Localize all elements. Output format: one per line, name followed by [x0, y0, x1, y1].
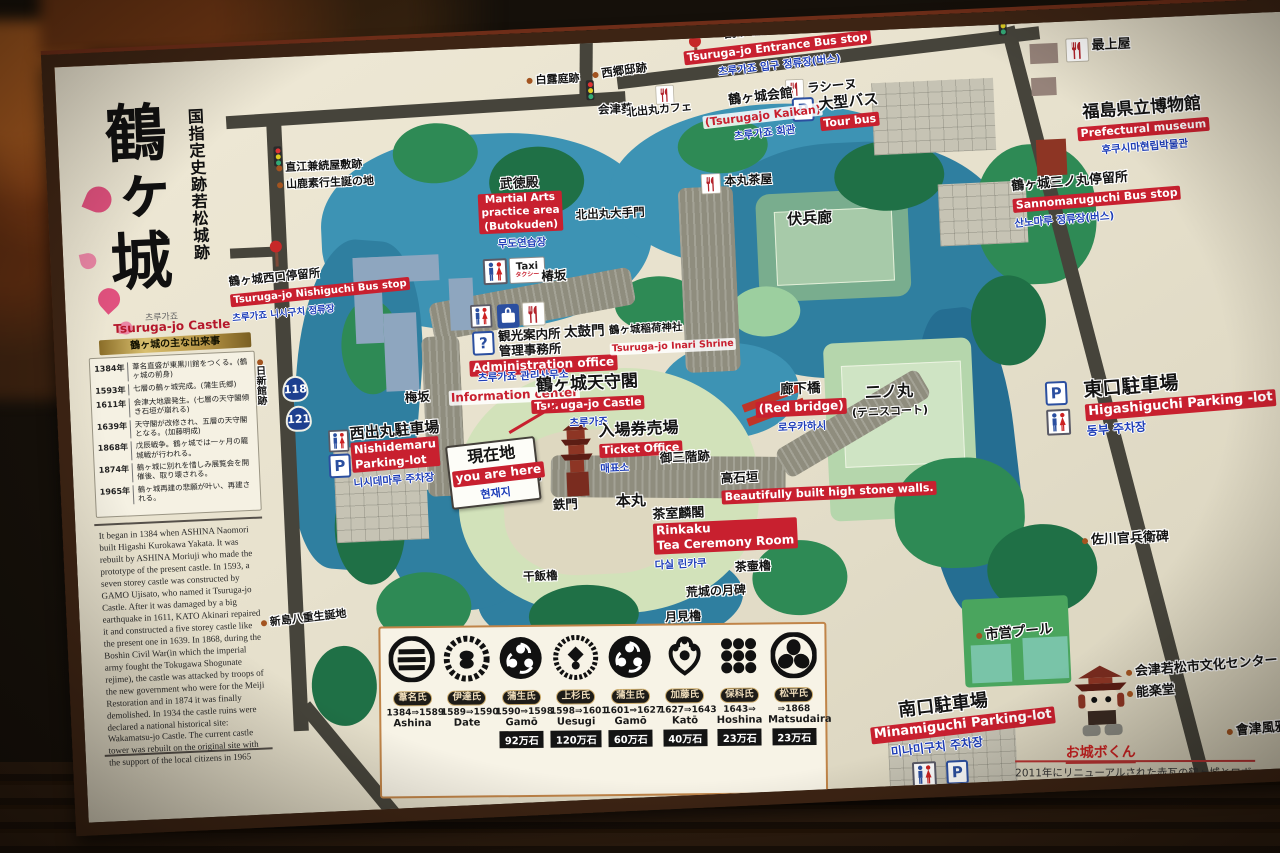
label-ticket-office-jp: 入場券売場	[598, 417, 679, 440]
taxi-icon: Taxi タクシー	[509, 256, 546, 284]
matsudaira-crest-icon	[770, 632, 816, 678]
history-paragraph: It began in 1384 when ASHINA Naomori bui…	[94, 516, 272, 756]
label-ticket-office: 入場券売場 Ticket Office 매표소	[598, 418, 683, 476]
timeline-text: 七層の鶴ヶ城完成。(蒲生氏郷)	[128, 379, 237, 395]
crest-years: 1601⇒1627	[604, 705, 656, 716]
coin-locker-icon	[497, 304, 520, 329]
label-rinkaku-en: Rinkaku Tea Ceremony Room	[653, 517, 798, 555]
label-nisshinkan: 日新館跡	[253, 359, 269, 430]
crest-name: 葦名氏	[393, 691, 432, 706]
crest-romaji: Katō	[659, 715, 711, 727]
timeline-year: 1593年	[95, 384, 128, 396]
timeline-year: 1611年	[96, 398, 130, 418]
crest-name: 上杉氏	[556, 689, 595, 704]
crest-romaji: Uesugi	[550, 716, 602, 728]
parking-letter: P	[1050, 384, 1062, 402]
label-shirotsuyu: 白露庭跡	[526, 73, 580, 88]
you-are-here-en: you are here	[452, 461, 545, 487]
crest-name: 伊達氏	[447, 690, 486, 705]
timeline-year: 1384年	[94, 362, 128, 382]
crest-name: 加藤氏	[665, 688, 704, 703]
label-butokuden-en: Martial Arts practice area (Butokuden)	[478, 190, 564, 235]
crest-koku: 40万石	[663, 729, 707, 746]
castle-tower-icon	[558, 419, 595, 496]
label-rinkaku: 茶室麟閣 Rinkaku Tea Ceremony Room 다실 린카쿠	[652, 498, 798, 572]
pool	[1022, 636, 1069, 680]
you-are-here-box: 現在地 you are here 현재지	[445, 436, 542, 510]
timeline-text: 天守閣が改修され、五層の天守閣となる。(加藤明成)	[130, 414, 254, 438]
label-higashiguchi-parking: 東口駐車場 Higashiguchi Parking -lot 동부 주차장	[1083, 365, 1278, 439]
label-roukabashi-ko: 로우카하시	[778, 419, 827, 433]
you-are-here-jp: 現在地	[466, 442, 516, 466]
label-rinkaku-ko: 다실 린카쿠	[654, 557, 706, 571]
parking-letter: P	[334, 457, 346, 475]
label-naoe: 直江兼続屋敷跡	[276, 159, 362, 175]
crest-years: 1643⇒	[713, 704, 765, 715]
poi-bunka-center: 会津若松市文化センター	[1126, 654, 1279, 681]
board-designation: 国指定史跡若松城跡	[181, 108, 215, 329]
restaurant-icon	[1065, 38, 1089, 63]
signboard: 鶴ヶ城 国指定史跡若松城跡 츠루가죠 Tsuruga-jo Castle 鶴ヶ城…	[41, 0, 1280, 836]
crest-koku: 23万石	[772, 728, 816, 745]
label-nishidemaru-parking-en: Nishidemaru Parking-lot	[350, 436, 440, 473]
traffic-light-icon	[586, 80, 595, 100]
uesugi-crest-icon	[552, 634, 598, 680]
label-higashiguchi-parking-ko: 동부 주차장	[1086, 420, 1146, 439]
timeline-text: 葦名直盛が東黒川館をつくる。(鶴ヶ城の前身)	[127, 357, 251, 381]
poi-nohgakudo: 能楽堂	[1126, 683, 1175, 701]
crest-hoshina: 保科氏 1643⇒ Hoshina 23万石	[713, 632, 767, 789]
restaurant-icon	[701, 173, 721, 194]
timeline-box: 1384年葦名直盛が東黒川館をつくる。(鶴ヶ城の前身) 1593年七層の鶴ヶ城完…	[89, 351, 262, 518]
label-tsubakizaka: 椿坂	[541, 268, 567, 283]
label-roukabashi-jp: 廊下橋	[780, 380, 821, 398]
crest-romaji: Gamō	[605, 715, 657, 727]
building	[1031, 77, 1057, 96]
crest-name: 松平氏	[774, 687, 813, 702]
label-museum: 福島県立博物館 Prefectural museum 후쿠시마현립박물관	[1075, 94, 1211, 160]
label-honmaru-chaya: 本丸茶屋	[724, 173, 773, 189]
crest-years: 1590⇒1598	[495, 707, 547, 718]
parking-icon: P	[1045, 381, 1068, 406]
traffic-light-icon	[998, 15, 1007, 35]
board-title: 鶴ヶ城	[97, 100, 169, 333]
label-inari-jp: 鶴ヶ城稲荷神社	[609, 321, 683, 336]
building	[1029, 43, 1058, 64]
restroom-icon	[328, 429, 349, 452]
crest-matsudaira: 松平氏 ⇒1868 Matsudaira 23万石	[767, 632, 821, 789]
label-museum-ko: 후쿠시마현립박물관	[1101, 138, 1189, 157]
museum-building	[1036, 139, 1068, 176]
hoshina-crest-icon	[716, 633, 762, 679]
crest-koku: 60万石	[609, 729, 653, 746]
label-umezaka: 梅坂	[405, 390, 431, 405]
restroom-icon	[912, 761, 937, 788]
clan-crest-panel: 葦名氏 1384⇒1589 Ashina 伊達氏 1589⇒1590 Date …	[378, 622, 828, 799]
label-nishiguchi-bus-jp: 鶴ヶ城西口停留所	[228, 266, 321, 289]
label-tenshukaku-jp: 鶴ヶ城天守閣	[536, 371, 639, 396]
crest-name: 蒲生氏	[502, 690, 541, 705]
crest-gamo-2: 蒲生氏 1601⇒1627 Gamō 60万石	[604, 634, 658, 791]
restaurant-icon	[522, 301, 546, 326]
label-tenshukaku-en: Tsuruga-jo Castle	[531, 395, 645, 414]
tour-bus-parking-area	[871, 78, 996, 155]
crest-romaji: Hoshina	[714, 714, 766, 726]
label-entrance-bus-stop: 鶴ヶ城入口停留所 Tsuruga-jo Entrance Bus stop 츠루…	[681, 7, 874, 83]
gamo-crest-icon	[607, 634, 653, 680]
information-icon: ?	[472, 331, 495, 356]
crest-romaji: Gamō	[496, 717, 548, 729]
building	[383, 312, 420, 391]
timeline-text: 鶴ヶ城に別れを惜しみ展覧会を開催後、取り壊される。	[132, 458, 256, 482]
taxi-label-jp: タクシー	[515, 272, 539, 279]
crest-uesugi: 上杉氏 1598⇒1601 Uesugi 120万石	[549, 634, 603, 791]
crest-romaji: Matsudaira	[768, 714, 820, 726]
crest-ashina: 葦名氏 1384⇒1589 Ashina	[386, 636, 440, 793]
label-ninomaru: 二ノ丸 (テニスコート)	[851, 381, 929, 420]
pool	[971, 644, 1013, 684]
label-ninomaru-sub: (テニスコート)	[852, 403, 929, 419]
timeline-row: 1965年鶴ヶ城再建の悲願が叶い、再建される。	[100, 479, 257, 505]
label-tetsumon: 鉄門	[553, 497, 579, 512]
timeline-year: 1639年	[97, 420, 131, 440]
bus-stop-pin-icon	[270, 240, 283, 267]
crest-date: 伊達氏 1589⇒1590 Date	[440, 635, 494, 792]
parking-icon: P	[328, 453, 351, 478]
label-kitadomaru-cafe: 北出丸カフェ	[626, 101, 693, 120]
label-roukabashi-en: (Red bridge)	[755, 398, 847, 418]
label-tour-bus: 大型バス Tour bus	[818, 90, 881, 132]
restroom-icon	[483, 258, 508, 285]
crest-years: 1627⇒1643	[659, 705, 711, 716]
you-are-here-ko: 현재지	[480, 485, 512, 501]
question-mark: ?	[479, 334, 489, 352]
label-roukabashi: 廊下橋 (Red bridge) 로우카하시	[754, 377, 847, 436]
label-minamiguchi-parking: 南口駐車場 Minamiguchi Parking-lot 미나미구치 주차장	[867, 683, 1057, 762]
label-taikomon: 太鼓門	[564, 324, 605, 341]
label-fukuhei: 伏兵廊	[787, 209, 833, 228]
sakura-petal	[79, 252, 98, 271]
crest-koku: 120万石	[551, 730, 602, 748]
timeline-text: 戊辰戦争。鶴ヶ城では一ヶ月の籠城戦が行われる。	[131, 436, 255, 460]
timeline-year: 1868年	[98, 442, 132, 462]
label-ticket-office-ko: 매표소	[600, 462, 629, 475]
crest-name: 保科氏	[720, 688, 759, 703]
crest-years: 1598⇒1601	[550, 706, 602, 717]
label-rinkaku-jp: 茶室麟閣	[652, 505, 705, 522]
ashina-crest-icon	[389, 636, 435, 682]
label-ninomaru-jp: 二ノ丸	[865, 381, 914, 402]
crest-kato: 加藤氏 1627⇒1643 Katō 40万石	[658, 633, 712, 790]
date-crest-icon	[443, 635, 489, 681]
gamo-crest-icon	[498, 635, 544, 681]
timeline-year: 1874年	[99, 463, 133, 483]
label-kaikan-en: (Tsurugajo Kaikan)	[702, 102, 823, 130]
timeline-year: 1965年	[100, 485, 134, 505]
label-butokuden: 武徳殿 Martial Arts practice area (Butokude…	[477, 172, 565, 253]
crest-koku: 92万石	[500, 731, 544, 748]
parking-icon: P	[946, 760, 969, 785]
label-kaikan-jp: 鶴ヶ城会館	[727, 86, 793, 108]
crest-years: 1384⇒1589	[386, 708, 438, 719]
label-sagawa: 佐川官兵衛碑	[1082, 530, 1170, 548]
label-chatsubo: 茶壷櫓	[735, 559, 772, 574]
timeline-text: 鶴ヶ城再建の悲願が叶い、再建される。	[133, 479, 257, 503]
label-koujou: 荒城の月碑	[686, 584, 747, 600]
crest-romaji: Ashina	[387, 718, 439, 730]
poi-fugado: 會津風雅堂	[1226, 719, 1280, 739]
crest-name: 蒲生氏	[611, 689, 650, 704]
crest-romaji: Date	[441, 717, 493, 729]
label-butokuden-ko: 무도연습장	[498, 237, 547, 251]
label-honmaru: 本丸	[615, 492, 646, 510]
label-inari: 鶴ヶ城稲荷神社 Tsuruga-jo Inari Shrine	[608, 314, 736, 355]
parking-letter: P	[951, 763, 963, 781]
crest-gamo-1: 蒲生氏 1590⇒1598 Gamō 92万石	[495, 635, 549, 792]
restroom-icon	[1046, 409, 1071, 436]
crest-years: 1589⇒1590	[441, 707, 493, 718]
kato-crest-icon	[661, 633, 707, 679]
timeline-text: 会津大地震発生。(七層の天守閣傾き石垣が崩れる)	[129, 393, 253, 417]
route-number: 121	[287, 412, 311, 426]
route-number: 118	[284, 382, 308, 396]
crest-koku: 23万石	[718, 728, 762, 745]
restroom-icon	[470, 304, 493, 328]
crest-years: ⇒1868	[768, 704, 820, 715]
label-hoshii: 干飯櫓	[523, 569, 558, 583]
label-nishidemaru-parking: 西出丸駐車場 Nishidemaru Parking-lot 니시데마루 주차장	[349, 418, 444, 491]
label-butokuden-jp: 武徳殿	[499, 176, 539, 193]
label-gosankai: 御三階跡	[660, 449, 711, 465]
label-takaishigaki-jp: 高石垣	[720, 469, 758, 486]
label-mogamiya: 最上屋	[1091, 38, 1131, 54]
